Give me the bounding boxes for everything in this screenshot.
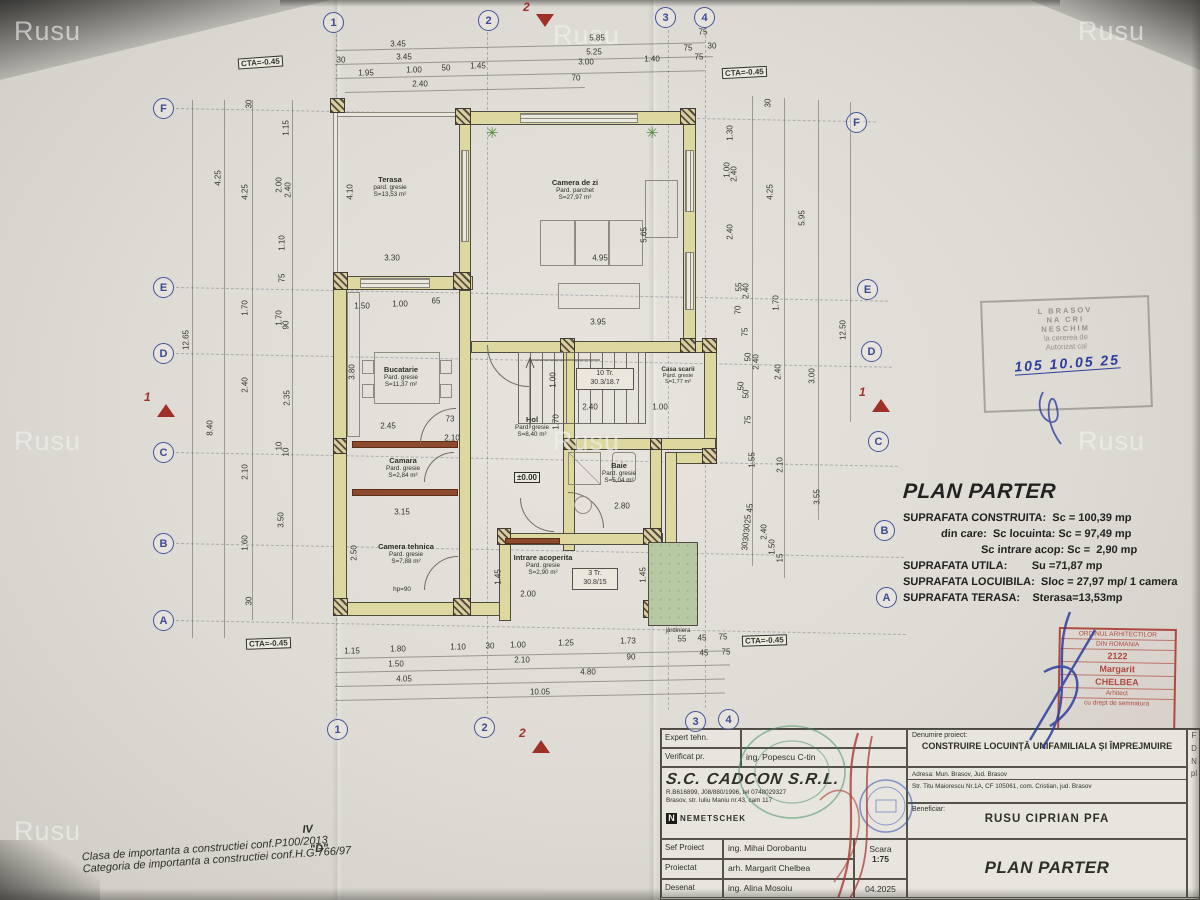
grid-bubble-D: D: [153, 343, 174, 364]
dim-label: 1.60: [241, 535, 250, 551]
dim-label: 30: [742, 533, 751, 542]
dim-label: 2.50: [350, 545, 359, 561]
dim-label: 4.80: [580, 668, 596, 677]
grid-bubble-1: 1: [323, 12, 344, 33]
dim-label: 2.40: [752, 354, 761, 370]
grid-bubble-2: 2: [474, 717, 495, 738]
dim-label: 1.55: [748, 452, 757, 468]
dim-label: 1.00: [406, 66, 422, 75]
dim-label: 25: [744, 515, 753, 524]
grid-bubble-B: B: [153, 533, 174, 554]
dim-label: 75: [699, 28, 708, 37]
room-label-camara: CamaraPard. gresieS=2,84 m²: [386, 456, 420, 479]
tb-edge-letter: N: [1188, 756, 1200, 769]
dim-label: 30: [245, 597, 254, 606]
dim-label: 1.50: [768, 539, 777, 555]
dim-label: 75: [722, 648, 731, 657]
dim-label: 30: [245, 100, 254, 109]
dim-label: 70: [572, 74, 581, 83]
footnote-value2: "D": [309, 842, 328, 855]
section-marker-triangle: [532, 740, 550, 753]
company-address: Brasov, str. Iuliu Maniu nr.43, cam 117: [666, 797, 902, 805]
dim-label: 75: [278, 274, 287, 283]
section-marker-triangle: [872, 399, 890, 412]
dim-label: 30: [764, 99, 773, 108]
dim-label: 1.15: [344, 647, 360, 656]
tb-expert-value: [741, 729, 907, 748]
dim-label: 30: [486, 642, 495, 651]
dim-label: 10: [282, 448, 291, 457]
area-summary-line: SUPRAFATA LOCUIBILA: Sloc = 27,97 mp/ 1 …: [903, 576, 1200, 588]
dim-label: 90: [627, 653, 636, 662]
dim-label: 75: [719, 633, 728, 642]
dim-label: 1.10: [278, 235, 287, 251]
tb-edge-letter: D: [1188, 743, 1200, 756]
room-label-camera-de-zi: Camera de ziPard. parchetS=27,97 m²: [552, 178, 598, 201]
dim-label: 2.10: [776, 457, 785, 473]
dim-label: 1.70: [552, 414, 561, 430]
dim-label: 1.70: [241, 300, 250, 316]
dim-label: 2.40: [774, 364, 783, 380]
dim-label: 1.25: [558, 639, 574, 648]
dim-label: 3.00: [808, 368, 817, 384]
dim-label: 1.95: [358, 69, 374, 78]
dim-label: 73: [446, 415, 455, 424]
dim-label: 2.00: [520, 590, 536, 599]
stair-note: 10 Tr.30.3/18.7: [576, 368, 634, 390]
scanned-floor-plan-photo: 10 Tr.30.3/18.7 3 Tr.30.8/15 ✳ ✳ Terasap…: [0, 0, 1200, 900]
stamp-handwriting: 105 10.05 25: [1013, 351, 1120, 375]
dim-label: 1.00: [392, 300, 408, 309]
plant-icon: ✳: [646, 124, 659, 142]
dim-label: 1.40: [644, 55, 660, 64]
room-note-hp: hp=90: [393, 586, 411, 593]
dim-label: 30: [743, 524, 752, 533]
room-label-terasa: Terasapard. gresieS=13,53 m²: [373, 175, 406, 198]
section-marker-label: 1: [859, 385, 866, 399]
tb-sef-value: ing. Mihai Dorobantu: [723, 839, 854, 859]
tb-plansa-cell: PLAN PARTER: [907, 839, 1187, 898]
dim-label: 2.40: [726, 224, 735, 240]
dim-label: 3.50: [277, 512, 286, 528]
tb-edge-letter: pl: [1188, 768, 1200, 781]
dim-label: 50: [442, 64, 451, 73]
nemetschek-logo-text: NEMETSCHEK: [680, 814, 746, 823]
dim-label: 45: [698, 634, 707, 643]
grid-bubble-B: B: [874, 520, 895, 541]
dim-label: 75: [695, 53, 704, 62]
tb-project-cell: Denumire proiect: CONSTRUIRE LOCUINȚĂ UN…: [907, 729, 1187, 767]
grid-bubble-D: D: [861, 341, 882, 362]
dim-label: 70: [734, 306, 743, 315]
dim-label: 4.95: [592, 254, 608, 263]
section-marker-triangle: [536, 14, 554, 27]
area-summary-block: PLAN PARTER SUPRAFATA CONSTRUITA: Sc = 1…: [903, 480, 1200, 608]
tb-desenat-value: ing. Alina Mosoiu: [723, 879, 854, 898]
dim-label: 2.10: [514, 656, 530, 665]
room-label-camera-tehnica: Camera tehnicaPard. gresieS=7,88 m²: [378, 542, 434, 565]
dim-label: 75: [741, 328, 750, 337]
architect-order-stamp: ORDINUL ARHITECTILORDIN ROMANIA2122Marga…: [1057, 627, 1177, 735]
dim-label: 3.55: [813, 489, 822, 505]
dim-label: 10.05: [530, 688, 550, 697]
dim-label: 90: [282, 321, 291, 330]
dim-label: 2.40: [730, 166, 739, 182]
tb-edge-column: FDNpl: [1187, 729, 1200, 898]
dim-label: 65: [432, 297, 441, 306]
dim-label: 1.00: [652, 403, 668, 412]
dim-label: 45: [746, 504, 755, 513]
tb-desenat-label: Desenat: [661, 879, 723, 898]
tb-date-cell: 04.2025: [854, 879, 907, 898]
dim-label: 3.30: [384, 254, 400, 263]
section-marker-label: 2: [519, 726, 526, 740]
plan-title: PLAN PARTER: [902, 480, 1200, 504]
company-name: S.C. CADCON S.R.L.: [665, 771, 904, 789]
grid-bubble-2: 2: [478, 10, 499, 31]
tb-verificat-value: ing. Popescu C-tin: [741, 748, 907, 767]
area-summary-line: Sc intrare acop: Sc = 2,90 mp: [903, 544, 1200, 556]
watermark-text: Rusu: [14, 16, 81, 47]
grid-bubble-4: 4: [718, 709, 739, 730]
section-marker-label: 1: [144, 390, 151, 404]
watermark-text: Rusu: [14, 426, 81, 457]
dim-label: 30: [337, 56, 346, 65]
dim-label: 4.25: [214, 170, 223, 186]
room-label-jardiniera: jardiniera: [666, 628, 691, 634]
dim-label: 1.30: [726, 125, 735, 141]
nemetschek-logo-icon: N: [666, 813, 677, 824]
photo-corner-shadow: [0, 0, 330, 80]
dim-label: 1.00: [510, 641, 526, 650]
dim-label: 45: [700, 649, 709, 658]
dim-label: 3.45: [390, 40, 406, 49]
dim-label: 4.05: [396, 675, 412, 684]
company-registration: R.B616899, J08/880/1996, tel 0748029327: [666, 789, 902, 797]
dim-label: 3.45: [396, 53, 412, 62]
tb-sef-label: Sef Proiect: [661, 839, 723, 859]
approval-stamp-faint: L BRASOVNA CRINESCHIMla cererea deAutori…: [980, 295, 1153, 413]
dim-label: 3.80: [348, 364, 357, 380]
dim-label: 75: [744, 416, 753, 425]
dim-label: 8.40: [206, 420, 215, 436]
tb-beneficiar-cell: Beneficiar: RUSU CIPRIAN PFA: [907, 803, 1187, 839]
dim-label: 1.70: [772, 295, 781, 311]
tb-verificat-label: Verificat pr.: [661, 748, 741, 767]
dim-label: 2.40: [412, 80, 428, 89]
beneficiar-name: RUSU CIPRIAN PFA: [908, 813, 1186, 825]
dim-label: 2.40: [582, 403, 598, 412]
dim-label: 1.15: [282, 120, 291, 136]
dim-label: 2.35: [283, 390, 292, 406]
grid-bubble-F: F: [153, 98, 174, 119]
dim-label: 1.10: [450, 643, 466, 652]
photo-edge-shadow: [280, 0, 1060, 7]
dim-label: 3.00: [578, 58, 594, 67]
dim-label: 30: [708, 42, 717, 51]
tb-scale-cell: Scara1:75: [854, 839, 907, 879]
dim-label: 1.45: [639, 567, 648, 583]
title-block: Expert tehn. Verificat pr. ing. Popescu …: [660, 728, 1200, 900]
dim-label: 2.80: [614, 502, 630, 511]
dim-label: 5.25: [586, 48, 602, 57]
dim-label: 1.80: [390, 645, 406, 654]
dim-label: 2.40: [760, 524, 769, 540]
area-summary-line: SUPRAFATA CONSTRUITA: Sc = 100,39 mp: [903, 512, 1200, 524]
dim-label: 30: [741, 542, 750, 551]
dim-label: 1.45: [470, 62, 486, 71]
dim-label: 2.40: [742, 283, 751, 299]
tb-expert-label: Expert tehn.: [661, 729, 741, 748]
tb-address-cell: Adresa: Mun. Brasov, Jud. Brasov Str. Ti…: [907, 767, 1187, 803]
section-marker-label: 2: [523, 0, 530, 14]
importance-class-notes: Clasa de importanta a constructiei conf.…: [81, 833, 351, 876]
dim-label: 15: [776, 554, 785, 563]
grid-bubble-A: A: [153, 610, 174, 631]
dim-label: 3.95: [590, 318, 606, 327]
area-summary-line: din care: Sc locuinta: Sc = 97,49 mp: [903, 528, 1200, 540]
room-label-hol: HolPard. gresieS=8,40 m²: [515, 415, 549, 438]
dim-label: 2.45: [380, 422, 396, 431]
dim-label: 4.25: [766, 184, 775, 200]
grid-bubble-E: E: [857, 279, 878, 300]
dim-label: 75: [684, 44, 693, 53]
room-label-intrare: Intrare acoperitaPard. gresieS=2,90 m²: [514, 553, 573, 576]
dim-label: 1.50: [354, 302, 370, 311]
grid-bubble-3: 3: [655, 7, 676, 28]
tb-edge-letter: F: [1188, 730, 1200, 743]
grid-bubble-E: E: [153, 277, 174, 298]
room-label-baie: BaiePard. gresieS=5,04 m²: [602, 461, 636, 484]
grid-bubble-C: C: [153, 442, 174, 463]
footnote-value1: IV: [302, 823, 313, 836]
project-name: CONSTRUIRE LOCUINȚĂ UNIFAMILIALA ȘI ÎMPR…: [908, 739, 1186, 751]
dim-label: 2.00: [275, 177, 284, 193]
dim-label: 1.73: [620, 637, 636, 646]
grid-bubble-3: 3: [685, 711, 706, 732]
watermark-text: Rusu: [1078, 426, 1145, 457]
dim-label: 12.50: [839, 320, 848, 340]
dim-label: 2.40: [284, 182, 293, 198]
room-label-casa-scarii: Casa scariiPard. gresieS=1,77 m²: [661, 366, 694, 385]
dim-label: 1.00: [549, 372, 558, 388]
dim-label: 4.10: [346, 184, 355, 200]
dim-label: 5.95: [798, 210, 807, 226]
room-label-bucatarie: BucatariePard. gresieS=11,37 m²: [384, 365, 418, 388]
area-summary-line: SUPRAFATA UTILA: Su =71,87 mp: [903, 560, 1200, 572]
planter-jardiniera: [648, 542, 698, 626]
dim-label: 5.85: [589, 34, 605, 43]
grid-bubble-1: 1: [327, 719, 348, 740]
cta-level-box: CTA=-0.45: [246, 637, 291, 650]
grid-bubble-4: 4: [694, 7, 715, 28]
cta-level-box: CTA=-0.45: [742, 634, 787, 647]
dim-label: 1.50: [388, 660, 404, 669]
dim-label: 2.10: [241, 464, 250, 480]
tb-proiectat-label: Proiectat: [661, 859, 723, 879]
dim-label: 2.10: [444, 434, 460, 443]
area-summary-line: SUPRAFATA TERASA: Sterasa=13,53mp: [903, 592, 1200, 604]
dim-label: 55: [678, 635, 687, 644]
dim-label: 5.65: [640, 227, 649, 243]
grid-bubble-A: A: [876, 587, 897, 608]
dim-label: 12.65: [182, 330, 191, 350]
tb-company-cell: S.C. CADCON S.R.L. R.B616899, J08/880/19…: [661, 767, 907, 839]
photo-corner-shadow: [1030, 0, 1200, 70]
tb-proiectat-value: arh. Margarit Chelbea: [723, 859, 854, 879]
entry-steps-note: 3 Tr.30.8/15: [572, 568, 618, 590]
dim-label: 50: [742, 390, 751, 399]
level-marker: ±0.00: [514, 472, 540, 483]
sheet-title: PLAN PARTER: [985, 858, 1110, 877]
dim-label: 2.40: [241, 377, 250, 393]
architect-stamp-line: cu drept de semnatura: [1060, 698, 1174, 709]
plant-icon: ✳: [486, 124, 499, 142]
watermark-text: Rusu: [14, 816, 81, 847]
grid-bubble-F: F: [846, 112, 867, 133]
dim-label: 1.45: [494, 569, 503, 585]
dim-label: 4.25: [241, 184, 250, 200]
grid-bubble-C: C: [868, 431, 889, 452]
watermark-text: Rusu: [1078, 16, 1145, 47]
dim-label: 3.15: [394, 508, 410, 517]
watermark-text: Rusu: [553, 20, 620, 51]
cta-level-box: CTA=-0.45: [722, 66, 767, 79]
cta-level-box: CTA=-0.45: [238, 55, 283, 69]
section-marker-triangle: [157, 404, 175, 417]
